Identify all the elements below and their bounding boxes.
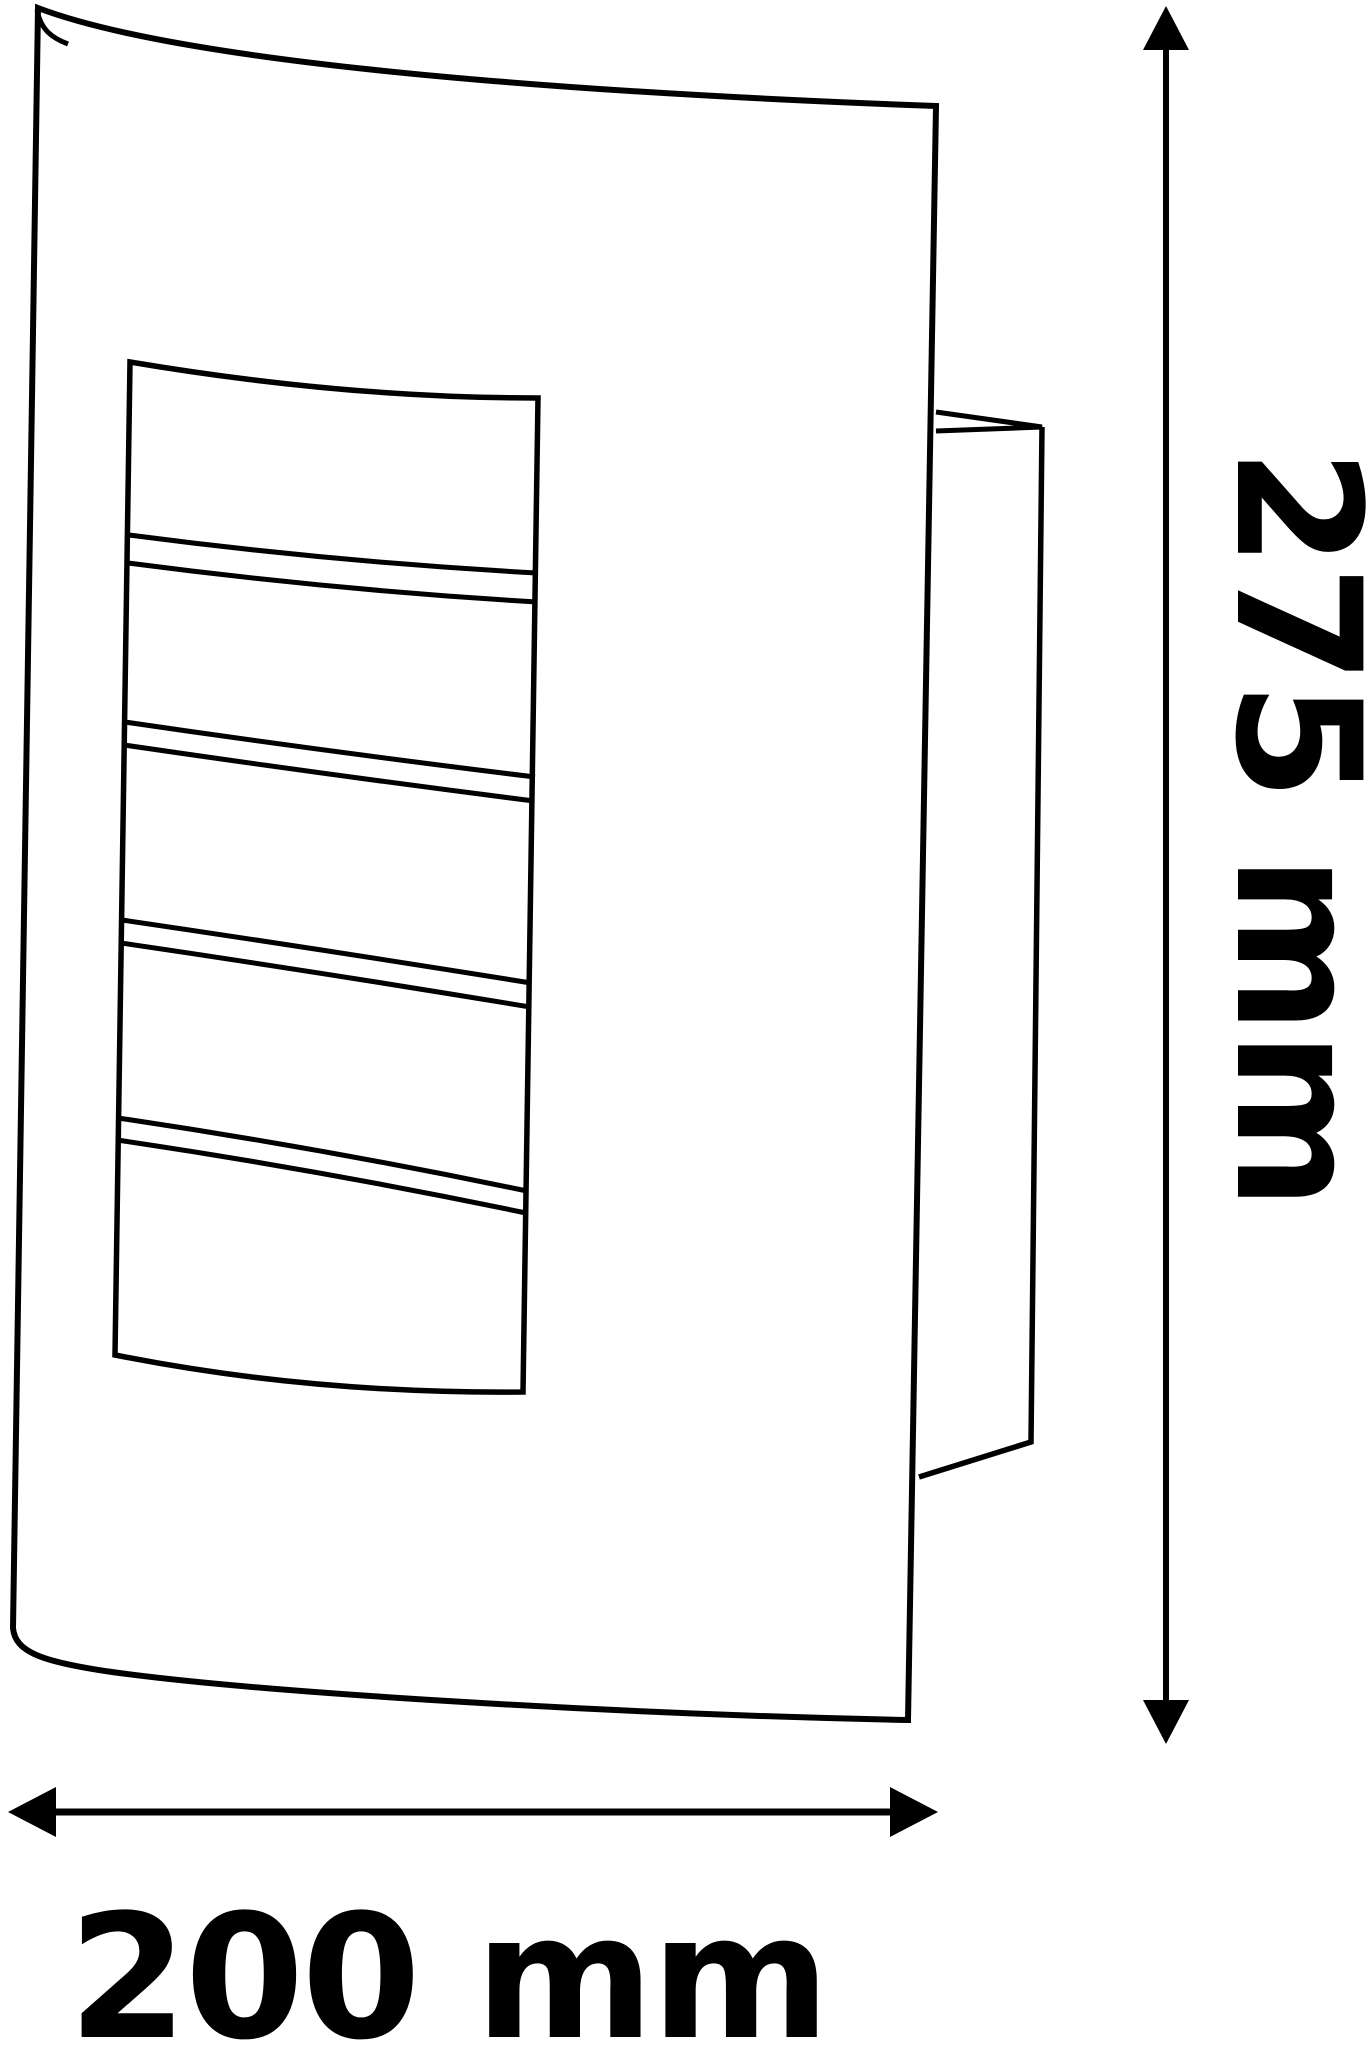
height-dimension-arrow [1143,6,1189,1744]
back-plate-right-edge [919,427,1042,1477]
back-plate-top-wedge [936,412,1042,431]
height-arrow-head-up [1143,6,1189,50]
lamp-body-outline [13,8,936,1720]
grille-slat-divider-2-bottom [124,745,534,801]
grille-slat-divider-4-top [118,1118,527,1191]
grille-slat-divider-1-top [129,535,537,573]
height-arrow-head-down [1143,1700,1189,1744]
height-dimension-label: 275 mm [1211,448,1372,1207]
back-plate [919,412,1042,1477]
grille [115,362,538,1392]
width-arrow-head-left [8,1787,56,1837]
width-arrow-head-right [890,1787,938,1837]
technical-drawing [0,0,1372,2048]
grille-frame [115,362,538,1392]
diagram-canvas: 275 mm 200 mm [0,0,1372,2048]
width-dimension-arrow [8,1787,938,1837]
grille-slat-divider-2-top [125,722,535,777]
lamp-body [13,8,936,1720]
width-dimension-label: 200 mm [68,1892,827,2048]
